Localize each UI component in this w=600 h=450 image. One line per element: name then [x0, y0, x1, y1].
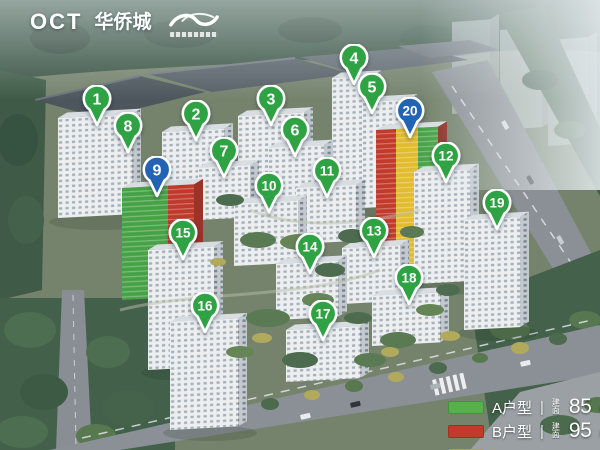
svg-text:17: 17 — [315, 307, 330, 322]
svg-text:16: 16 — [197, 299, 213, 314]
legend-type-b-area: 95 — [569, 419, 591, 443]
building-marker-19[interactable]: 19 — [480, 189, 514, 231]
brand-bar: OCT 华侨城 — [30, 9, 221, 37]
building-marker-7[interactable]: 7 — [207, 137, 241, 179]
svg-text:11: 11 — [320, 164, 335, 179]
svg-text:14: 14 — [302, 240, 318, 255]
partner-logo — [167, 9, 221, 37]
svg-text:8: 8 — [124, 119, 133, 136]
legend-type-a-area-prefix: 建面 — [552, 399, 561, 415]
svg-text:9: 9 — [153, 163, 162, 180]
building-marker-10[interactable]: 10 — [252, 172, 286, 214]
building-marker-9[interactable]: 9 — [140, 156, 174, 198]
svg-text:15: 15 — [175, 226, 191, 241]
legend-type-b-area-prefix: 建面 — [552, 423, 561, 439]
svg-text:3: 3 — [267, 92, 276, 109]
building-marker-15[interactable]: 15 — [166, 219, 200, 261]
svg-text:1: 1 — [93, 92, 102, 109]
building-marker-14[interactable]: 14 — [293, 233, 327, 275]
svg-text:19: 19 — [489, 196, 504, 211]
svg-text:10: 10 — [261, 179, 276, 194]
legend-swatch-type-b — [448, 425, 484, 438]
legend-type-b-label: B户型 — [492, 421, 532, 442]
building-marker-8[interactable]: 8 — [111, 112, 145, 154]
svg-text:2: 2 — [192, 107, 201, 124]
svg-text:18: 18 — [401, 271, 417, 286]
legend-type-a-area: 85 — [569, 395, 591, 419]
svg-text:20: 20 — [402, 104, 417, 119]
legend-divider: | — [540, 423, 544, 440]
aerial-site-screenshot: OCT 华侨城 1234567891011121314151617181920 … — [0, 0, 600, 450]
building-marker-5[interactable]: 5 — [355, 73, 389, 115]
legend-type-a-label: A户型 — [492, 397, 532, 418]
legend-row-type-b: B户型 | 建面 95 m² — [448, 422, 600, 440]
building-marker-13[interactable]: 13 — [357, 217, 391, 259]
building-marker-2[interactable]: 2 — [179, 100, 213, 142]
building-marker-20[interactable]: 20 — [393, 97, 427, 139]
building-marker-12[interactable]: 12 — [429, 142, 463, 184]
legend-row-type-a: A户型 | 建面 85 m² — [448, 398, 600, 416]
building-marker-17[interactable]: 17 — [306, 300, 340, 342]
building-marker-6[interactable]: 6 — [278, 116, 312, 158]
building-marker-18[interactable]: 18 — [392, 264, 426, 306]
svg-text:13: 13 — [366, 224, 382, 239]
legend-divider: | — [540, 399, 544, 416]
svg-text:12: 12 — [438, 149, 453, 164]
unit-type-legend: A户型 | 建面 85 m² B户型 | 建面 95 m² — [448, 398, 600, 450]
legend-swatch-type-a — [448, 401, 484, 414]
svg-text:7: 7 — [220, 144, 229, 161]
svg-text:5: 5 — [368, 80, 377, 97]
building-marker-11[interactable]: 11 — [310, 157, 344, 199]
oct-logo-text: OCT — [30, 9, 82, 35]
wave-ribbon-icon — [167, 9, 221, 31]
oct-logo-chinese: 华侨城 — [94, 9, 151, 35]
svg-text:6: 6 — [291, 123, 300, 140]
building-marker-16[interactable]: 16 — [188, 292, 222, 334]
legend-row-type-c-partial — [448, 446, 600, 450]
building-marker-1[interactable]: 1 — [80, 85, 114, 127]
partner-logo-tagline — [170, 32, 218, 37]
svg-text:4: 4 — [350, 51, 359, 68]
